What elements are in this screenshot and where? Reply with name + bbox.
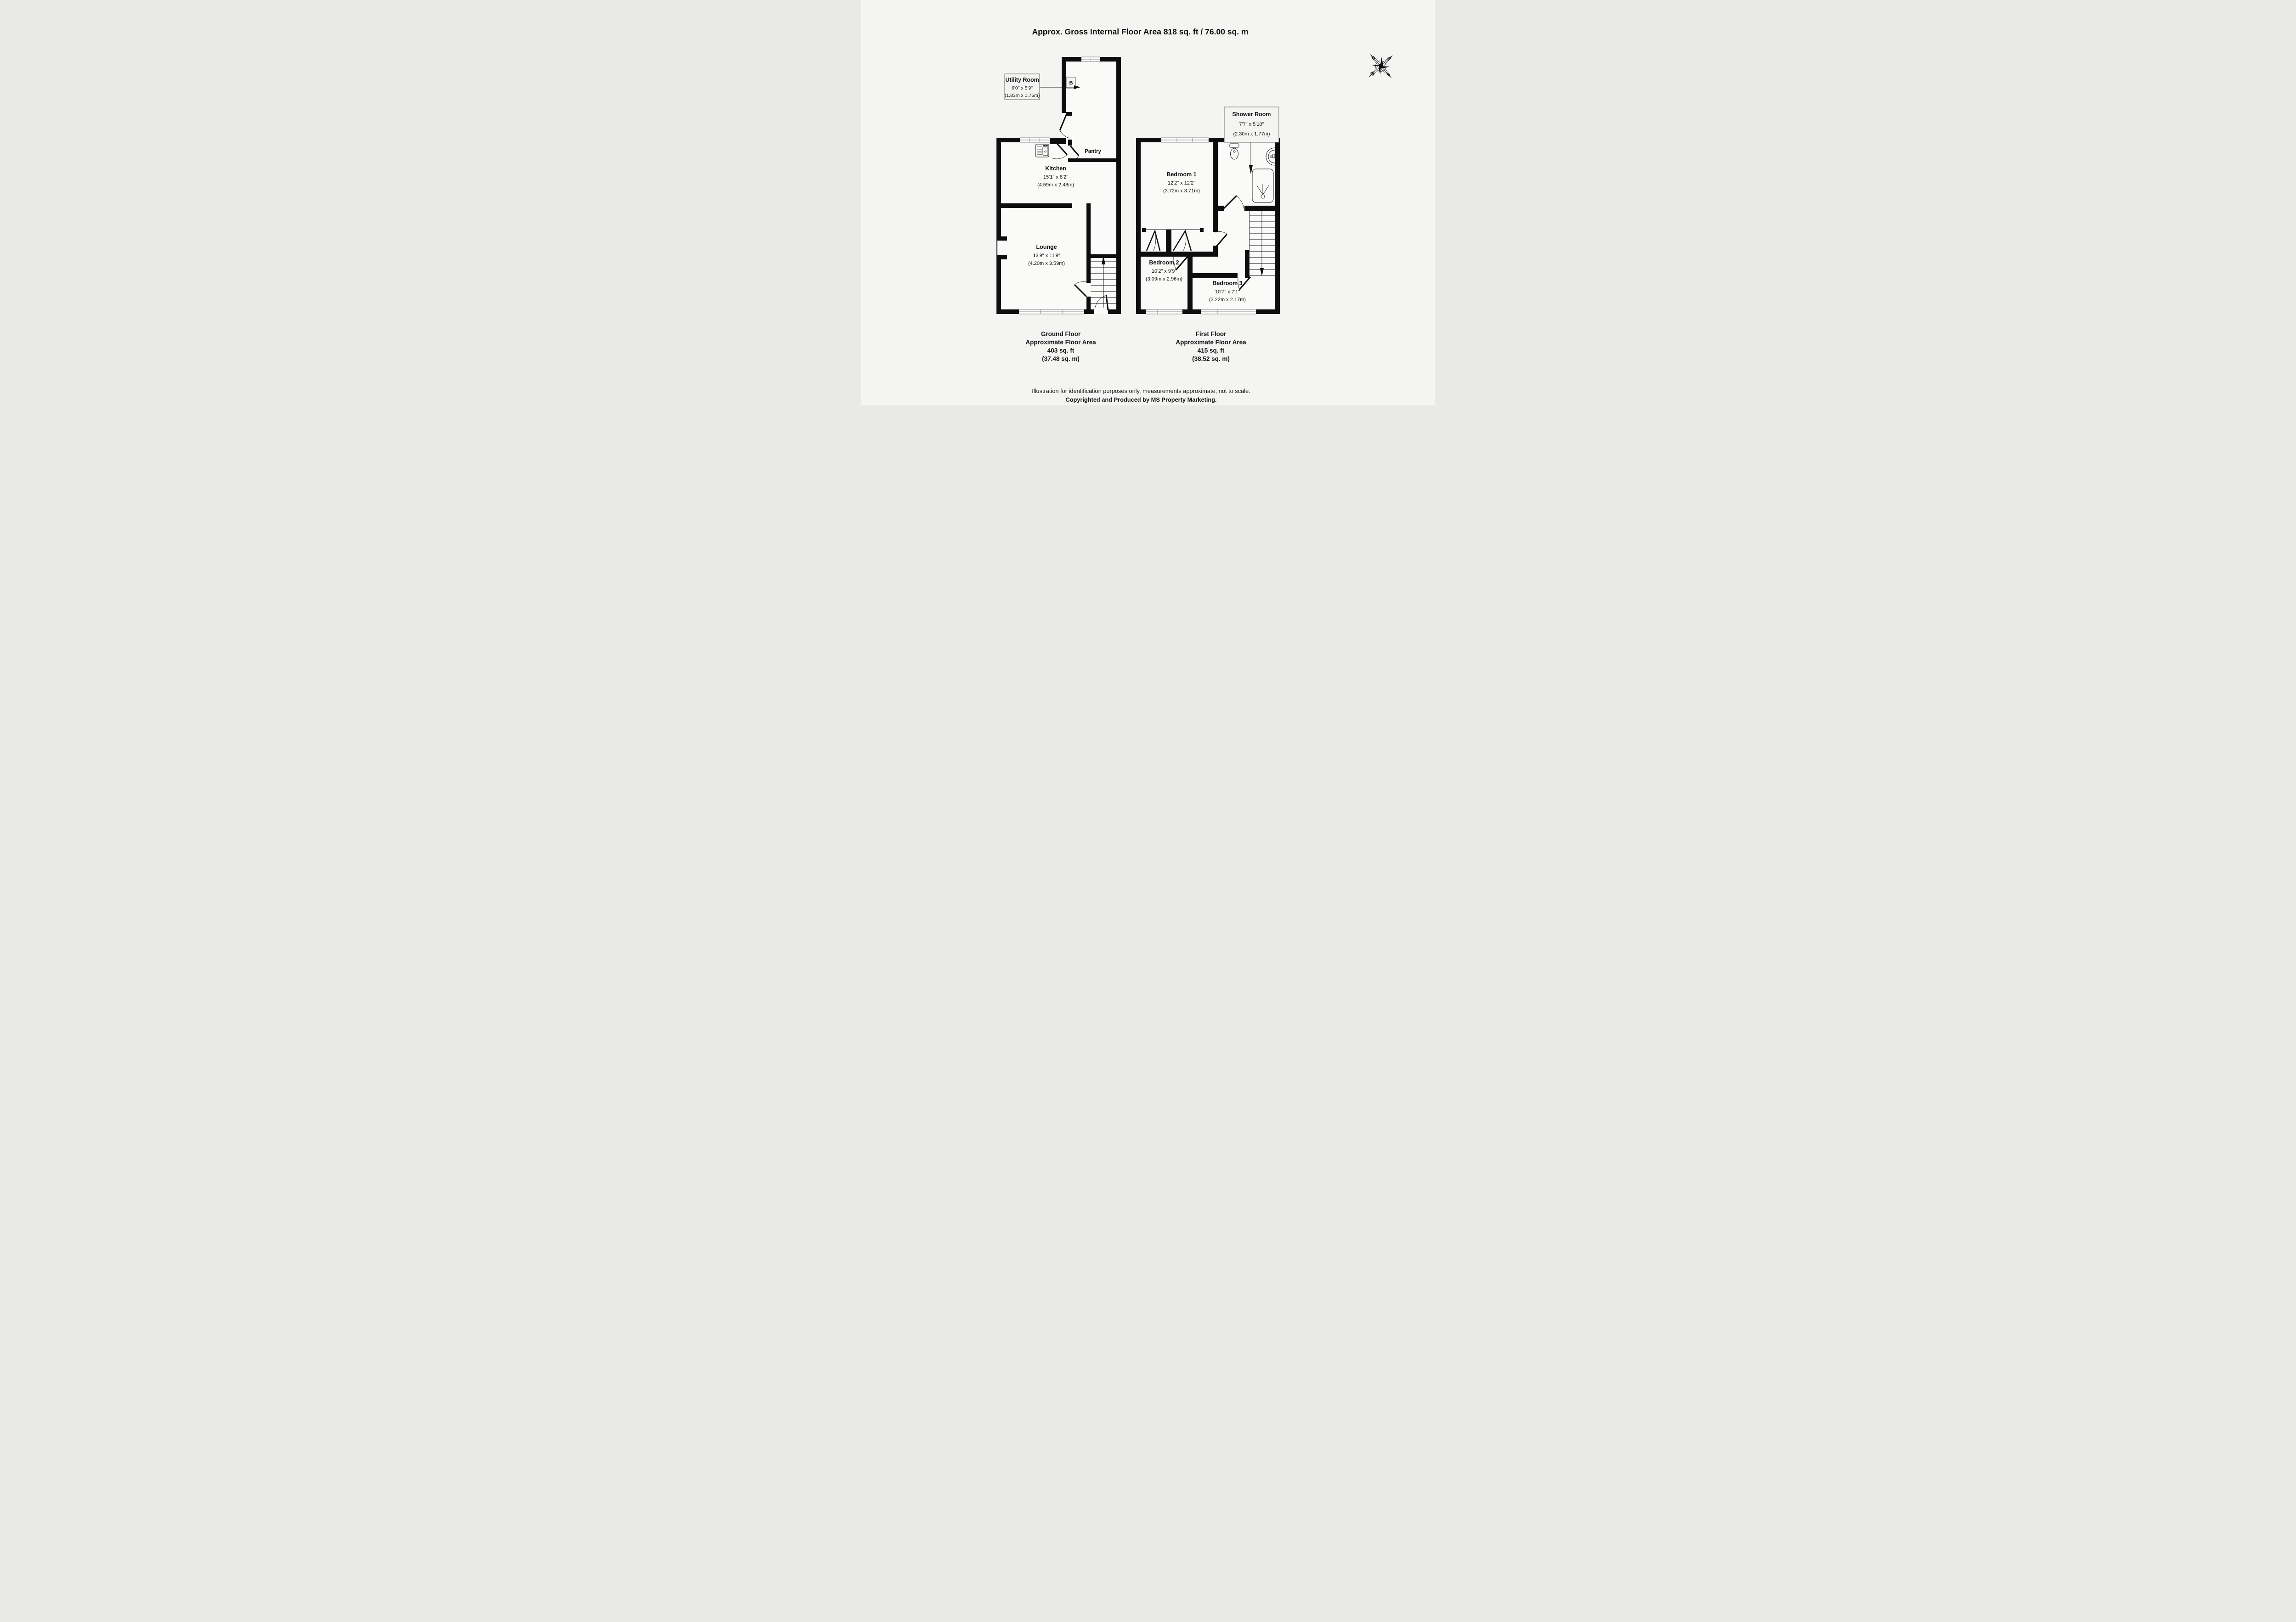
bedroom1-label: Bedroom 1 12'2" x 12'2" (3.72m x 3.71m) xyxy=(1163,171,1200,194)
disclaimer-line2: Copyrighted and Produced by MS Property … xyxy=(1065,396,1216,403)
ground-floor-plan: B Utility Room 6'0" x 5'9" (1.83m x 1.75… xyxy=(996,57,1121,362)
lounge-window xyxy=(1019,309,1084,314)
floorplan-page: Approx. Gross Internal Floor Area 818 sq… xyxy=(861,0,1435,405)
wall-pantry xyxy=(1068,140,1072,146)
wall-stub xyxy=(1200,228,1204,232)
ground-floor-caption: Ground Floor Approximate Floor Area 403 … xyxy=(1025,331,1096,362)
wall xyxy=(1136,138,1141,314)
page-title: Approx. Gross Internal Floor Area 818 sq… xyxy=(1032,27,1248,36)
wall xyxy=(1275,138,1280,314)
disclaimer: Illustration for identification purposes… xyxy=(1032,387,1250,403)
wall-shower xyxy=(1218,206,1224,211)
wall xyxy=(1062,57,1066,113)
compass-rose-icon: N E S W xyxy=(1359,44,1403,88)
wall-stub xyxy=(1142,228,1146,232)
room-dim-imperial: 10'2" x 9'9" xyxy=(1152,269,1176,274)
wall-stub xyxy=(1066,112,1072,116)
room-dim-metric: (1.83m x 1.75m) xyxy=(1005,93,1040,98)
chimney-stub xyxy=(1001,255,1007,259)
room-dim-imperial: 12'2" x 12'2" xyxy=(1168,180,1195,186)
room-dim-imperial: 10'7" x 7'1" xyxy=(1215,289,1240,295)
utility-room-area xyxy=(1062,57,1121,142)
room-dim-metric: (4.59m x 2.48m) xyxy=(1037,182,1074,188)
room-dim-imperial: 7'7" x 5'10" xyxy=(1239,122,1264,127)
wall-hall xyxy=(1086,297,1091,311)
bedroom2-window xyxy=(1146,309,1182,314)
room-name: Bedroom 3 xyxy=(1212,280,1242,286)
utility-window xyxy=(1081,57,1100,62)
room-dim-metric: (3.09m x 2.96m) xyxy=(1146,276,1182,282)
room-dim-metric: (3.72m x 3.71m) xyxy=(1163,188,1200,194)
wall-bed1 xyxy=(1213,206,1218,232)
room-dim-metric: (2.30m x 1.77m) xyxy=(1233,131,1270,137)
wall-bed3 xyxy=(1193,273,1238,278)
room-dim-imperial: 15'1" x 8'2" xyxy=(1043,174,1068,180)
room-name: Kitchen xyxy=(1045,165,1066,172)
room-name: Bedroom 2 xyxy=(1149,259,1179,266)
wall-kitchen-lounge xyxy=(1001,203,1072,208)
caption-line: Ground Floor xyxy=(1041,331,1081,337)
wall-hall xyxy=(1086,203,1091,283)
room-name: Shower Room xyxy=(1232,111,1271,118)
room-dim-metric: (3.22m x 2.17m) xyxy=(1209,297,1246,303)
caption-line: 403 sq. ft xyxy=(1047,347,1075,354)
room-name: Bedroom 1 xyxy=(1166,171,1196,178)
caption-line: (37.48 sq. m) xyxy=(1042,355,1080,362)
wall-bed2 xyxy=(1187,257,1193,309)
chimney-stub xyxy=(1001,236,1007,241)
bedroom1-window xyxy=(1161,138,1209,142)
boiler-label: B xyxy=(1069,80,1073,86)
caption-line: 415 sq. ft xyxy=(1198,347,1225,354)
wall-bed1-shower xyxy=(1213,142,1218,206)
front-door-opening xyxy=(1094,309,1108,314)
first-floor-area xyxy=(1136,138,1280,314)
room-dim-imperial: 13'9" x 11'9" xyxy=(1033,253,1060,258)
wall xyxy=(1050,138,1066,144)
ground-floor-area xyxy=(996,138,1121,314)
wall-shower xyxy=(1244,206,1275,211)
room-name: Utility Room xyxy=(1005,77,1039,83)
caption-line: First Floor xyxy=(1196,331,1227,337)
wall-bed1-bottom xyxy=(1141,252,1218,257)
wall-recess xyxy=(997,241,1001,255)
disclaimer-line1: Illustration for identification purposes… xyxy=(1032,387,1250,394)
caption-line: Approximate Floor Area xyxy=(1025,339,1096,346)
first-floor-caption: First Floor Approximate Floor Area 415 s… xyxy=(1176,331,1246,362)
room-name: Lounge xyxy=(1036,244,1057,250)
pantry-label: Pantry xyxy=(1085,149,1101,154)
bedroom3-window xyxy=(1201,309,1256,314)
wall-stairs xyxy=(1245,250,1249,278)
room-dim-metric: (4.20m x 3.59m) xyxy=(1028,261,1065,266)
wall-closet xyxy=(1166,230,1171,252)
first-floor-plan: Shower Room 7'7" x 5'10" (2.30m x 1.77m)… xyxy=(1136,107,1280,362)
kitchen-window xyxy=(1020,138,1050,142)
wall xyxy=(996,138,1001,314)
wall xyxy=(1116,57,1121,314)
floorplan-drawing: Approx. Gross Internal Floor Area 818 sq… xyxy=(861,0,1435,405)
caption-line: Approximate Floor Area xyxy=(1176,339,1246,346)
caption-line: (38.52 sq. m) xyxy=(1192,355,1230,362)
room-dim-imperial: 6'0" x 5'9" xyxy=(1012,85,1033,91)
